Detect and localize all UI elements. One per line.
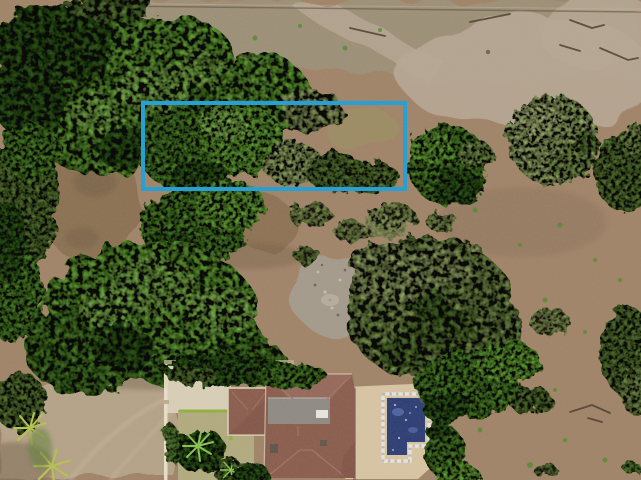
shrub-tuft-bottom-right-2 [623, 462, 641, 474]
garden-wall-vertical [164, 364, 168, 480]
roof-vent [270, 444, 278, 453]
pool-reflection-2 [408, 427, 418, 433]
main-roof [264, 374, 355, 478]
left-wing-roof [228, 388, 270, 435]
pool-reflection [392, 408, 404, 416]
clearing-dark-patch-2 [65, 227, 99, 249]
roof-ac-unit [316, 410, 328, 418]
shrub-garden-left [163, 425, 181, 465]
aerial-photo-canvas [0, 0, 641, 480]
roof-vent-2 [320, 440, 327, 446]
palm-base-shadow [28, 428, 52, 468]
aerial-photo [0, 0, 641, 480]
shrub-tuft-bottom-right [533, 463, 557, 477]
